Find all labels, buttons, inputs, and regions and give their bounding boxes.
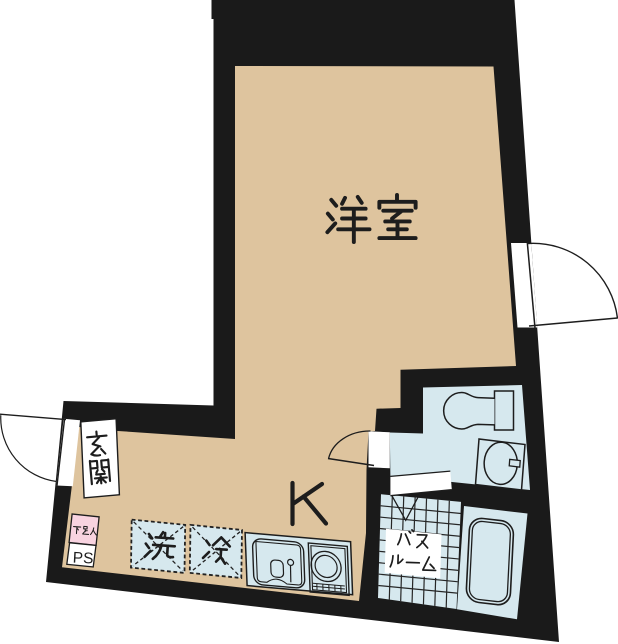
svg-text:PS: PS (72, 550, 94, 568)
